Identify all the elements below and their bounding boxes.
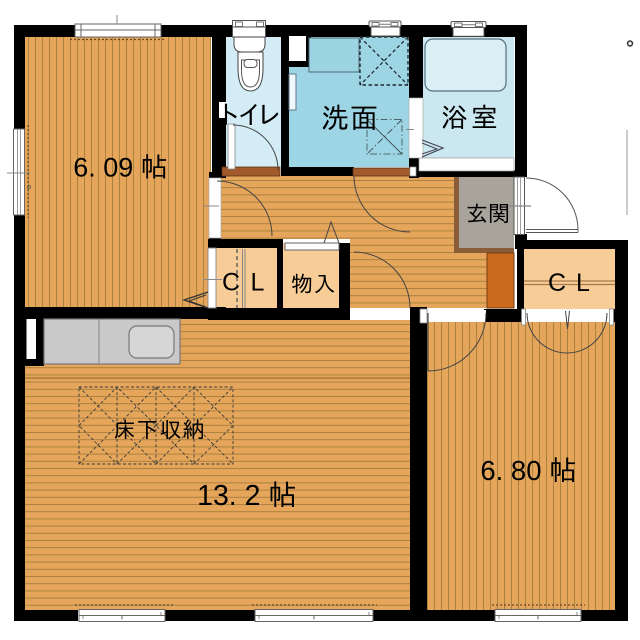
svg-text:L: L <box>576 269 590 297</box>
svg-text:床下収納: 床下収納 <box>114 418 206 443</box>
svg-text:浴室: 浴室 <box>441 103 501 133</box>
svg-text:C: C <box>222 269 240 297</box>
svg-text:6. 80 帖: 6. 80 帖 <box>480 455 576 486</box>
svg-text:トイレ: トイレ <box>220 100 279 130</box>
svg-text:玄関: 玄関 <box>466 202 510 227</box>
svg-text:洗面: 洗面 <box>321 103 379 134</box>
svg-text:6. 09 帖: 6. 09 帖 <box>73 153 168 183</box>
svg-text:C: C <box>548 269 566 297</box>
svg-text:13. 2 帖: 13. 2 帖 <box>197 480 297 512</box>
svg-text:物入: 物入 <box>291 272 336 297</box>
svg-text:L: L <box>251 269 265 297</box>
